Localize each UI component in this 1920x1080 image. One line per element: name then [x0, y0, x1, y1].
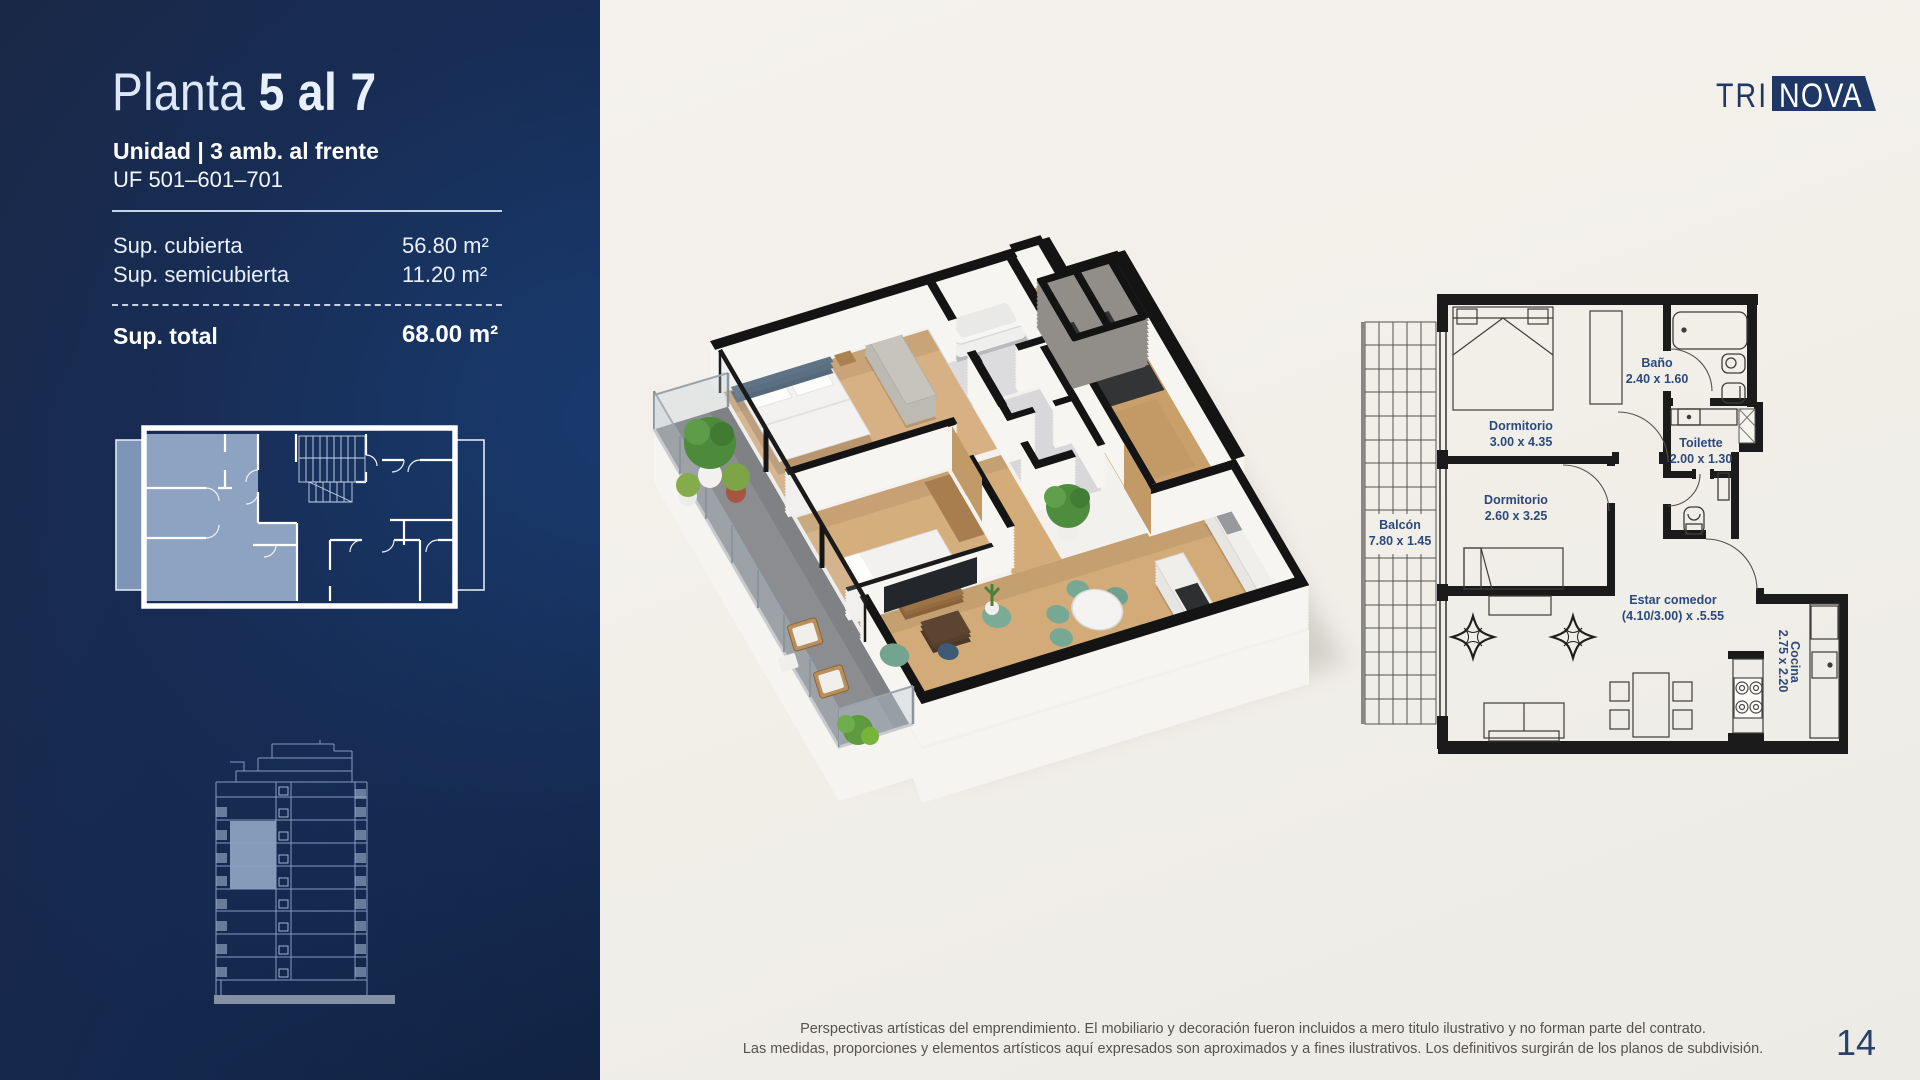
svg-text:2.75 x 2.20: 2.75 x 2.20 [1776, 630, 1790, 693]
svg-text:Balcón: Balcón [1379, 518, 1421, 532]
svg-text:Dormitorio: Dormitorio [1484, 493, 1548, 507]
svg-text:3.00 x 4.35: 3.00 x 4.35 [1490, 435, 1553, 449]
svg-text:Toilette: Toilette [1679, 436, 1723, 450]
svg-text:7.80 x 1.45: 7.80 x 1.45 [1369, 534, 1432, 548]
svg-text:Estar comedor: Estar comedor [1629, 593, 1717, 607]
svg-text:2.00 x 1.30: 2.00 x 1.30 [1670, 452, 1733, 466]
svg-text:(4.10/3.00) x .5.55: (4.10/3.00) x .5.55 [1622, 609, 1724, 623]
svg-text:NOVA: NOVA [1779, 77, 1863, 115]
svg-text:Dormitorio: Dormitorio [1489, 419, 1553, 433]
svg-text:TRI: TRI [1716, 77, 1768, 115]
svg-text:2.60 x 3.25: 2.60 x 3.25 [1485, 509, 1548, 523]
svg-text:Baño: Baño [1641, 356, 1673, 370]
svg-text:2.40 x 1.60: 2.40 x 1.60 [1626, 372, 1689, 386]
